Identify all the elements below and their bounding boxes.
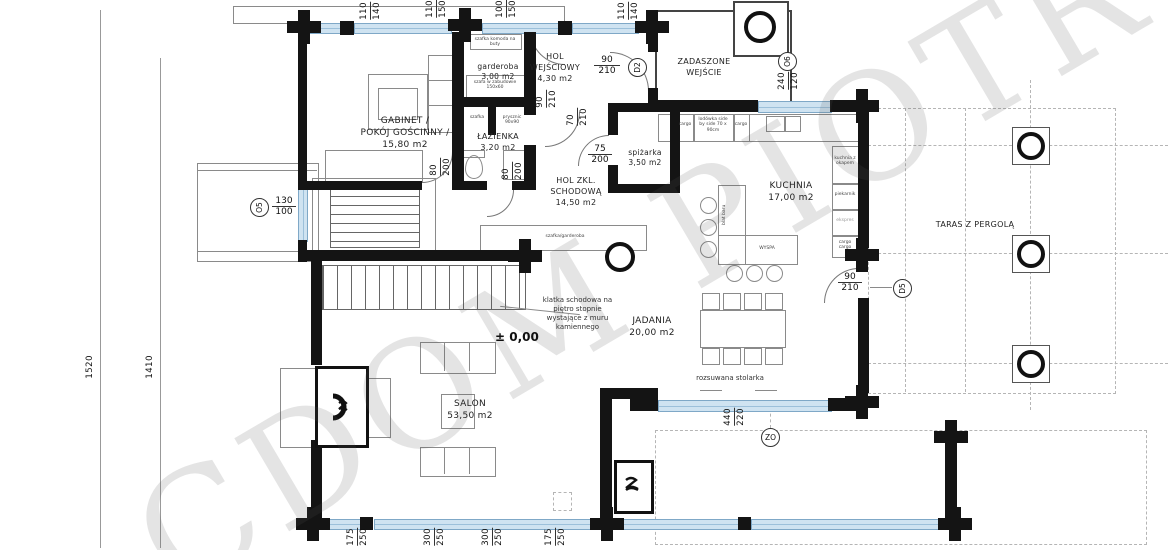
dim-window-4: 110140: [616, 2, 641, 20]
dining-chair: [723, 348, 741, 365]
rozsuwana-label: rozsuwana stolarka: [665, 374, 795, 383]
bath-cabinet-label: szafka: [466, 115, 488, 120]
log-corner-joint: [287, 10, 321, 44]
bar-stool: [766, 265, 783, 282]
marker-d5: D5: [893, 279, 912, 298]
wall-garderoba-lazienka: [452, 97, 536, 107]
sofa: [420, 342, 496, 374]
cargo-label: cargo: [732, 122, 750, 127]
stairs-note: klatka schodowa na piętro stopnie wystaj…: [515, 296, 640, 332]
pergola-column: [1012, 235, 1050, 273]
terrace-grid-line: [965, 108, 966, 392]
dim-spizarka-door: 75200: [588, 144, 612, 166]
door-arc-lazienka: [487, 190, 514, 217]
window-post: [738, 517, 751, 530]
sink-bowl: [766, 116, 785, 132]
wall-spizarka-left: [608, 112, 618, 135]
log-corner-joint: [296, 507, 330, 541]
sofa-seam: [469, 343, 470, 371]
cargo-label: cargo: [676, 122, 694, 127]
marker-zo: ZO: [761, 428, 780, 447]
wall-spizarka-top: [608, 103, 650, 112]
window-top-4: [572, 23, 639, 34]
island-bar-label: blat baru: [722, 195, 740, 235]
bar-stool: [700, 219, 717, 236]
dashed-square: [553, 492, 572, 511]
bar-stool: [700, 241, 717, 258]
bar-stool: [700, 197, 717, 214]
log-corner-joint: [845, 89, 879, 123]
dining-table: [700, 310, 786, 348]
slide-arrow: [700, 390, 722, 391]
d5-leader: [870, 287, 892, 288]
dim-door-gabinet: 80200: [428, 158, 453, 176]
dim-o5-window: 130100: [272, 196, 296, 218]
dim-window-2: 110150: [424, 0, 449, 18]
bar-stool: [726, 265, 743, 282]
sofa-seam: [444, 343, 445, 371]
bar-stool: [746, 265, 763, 282]
log-corner-joint: [845, 385, 879, 419]
wall-entry-south: [648, 100, 758, 112]
shoe-cabinet-label: szafka komoda na buty: [470, 37, 520, 48]
window-bottom-4: [751, 519, 947, 530]
sofa-seam: [469, 448, 470, 474]
pergola-column-ring: [1017, 350, 1045, 378]
kitchen-cargo-cabinet: [734, 114, 750, 142]
room-label-zadaszone: ZADASZONE WEJŚCIE: [660, 57, 748, 79]
sofa-seam: [444, 448, 445, 474]
wall-gabinet-bottom: [298, 181, 422, 190]
wall-lazienka-stub: [488, 107, 496, 135]
dining-chair: [765, 293, 783, 310]
dim-d5-door: 90210: [838, 272, 862, 294]
window-top-3: [482, 23, 562, 34]
marker-d2: D2: [628, 58, 647, 77]
dim-bottom-3: 300250: [480, 528, 505, 546]
dim-door-hol: 90210: [534, 90, 559, 108]
fireplace-chimney-outline: [280, 368, 316, 448]
dim-line-total: [100, 10, 101, 548]
pergola-column: [1012, 345, 1050, 383]
dim-o6-window: 240120: [776, 72, 801, 90]
dining-chair: [744, 293, 762, 310]
wall-gabinet-left: [298, 26, 307, 186]
dim-door-70: 70210: [565, 108, 590, 126]
dim-window-1: 110140: [358, 2, 383, 20]
oven-label: piekarnik: [833, 192, 857, 197]
wall-garderoba-left: [452, 32, 464, 182]
wall-lazienka-bottom: [452, 181, 487, 190]
room-label-hol-wejsciowy: HOL WEJŚCIOWY 4,30 m2: [515, 52, 595, 84]
dining-chair: [723, 293, 741, 310]
window-top-2: [354, 23, 452, 34]
room-label-spizarka: spiżarka 3,50 m2: [612, 148, 678, 168]
window-post: [340, 21, 354, 35]
room-label-gabinet: GABINET / POKÓJ GOŚCINNY / 15,80 m2: [335, 115, 475, 151]
marker-o5: O5: [250, 198, 269, 217]
island-label: WYSPA: [752, 246, 782, 251]
wall-lazienka-bottom: [512, 181, 536, 190]
log-corner-joint: [934, 420, 968, 454]
log-corner-joint: [508, 239, 542, 273]
espresso-label: ekspres: [833, 218, 857, 223]
fridge-label: lodówka side by side 70 x 90cm: [695, 117, 731, 133]
dining-chair: [765, 348, 783, 365]
dim-bottom-2: 300250: [422, 528, 447, 546]
level-mark: ± 0,00: [495, 330, 539, 344]
stairs-main-flight: [322, 265, 526, 310]
terrace-grid-line: [905, 108, 906, 392]
hob-label: kuchnia z okapem: [833, 156, 857, 167]
wall-stairs-top: [298, 250, 526, 261]
pergola-column-ring: [1017, 132, 1045, 160]
dim-stolarka: 440220: [722, 408, 747, 426]
outdoor-grill: [614, 460, 654, 514]
dining-chair: [744, 348, 762, 365]
window-o5: [298, 186, 308, 242]
window-post: [558, 21, 572, 35]
built-in-wardrobe-label: szafa w zabudowie 150x60: [466, 80, 524, 91]
chimney-circle: [744, 11, 776, 43]
dim-window-3: 100150: [494, 0, 519, 18]
pergola-column: [1012, 127, 1050, 165]
window-kitchen-o6: [758, 101, 832, 113]
window-bottom-3: [611, 519, 740, 530]
kitchen-cargo-cabinet: [678, 114, 694, 142]
dim-d2-door: 90210: [594, 55, 620, 77]
pergola-column-ring: [1017, 240, 1045, 268]
round-column: [605, 242, 635, 272]
cargo-tall-label: cargo cargo: [833, 240, 857, 251]
room-label-lazienka: ŁAZIENKA 3,20 m2: [458, 132, 538, 154]
fireplace: [315, 366, 369, 448]
toilet: [465, 155, 483, 179]
log-corner-joint: [938, 507, 972, 541]
room-label-hol-schodowy: HOL ZKL. SCHODOWĄ 14,50 m2: [535, 176, 617, 208]
sink-bowl: [785, 116, 801, 132]
dim-total-height: 1520: [84, 355, 96, 379]
flame-icon: [329, 392, 355, 422]
dim-bottom-4: 175250: [543, 528, 568, 546]
floor-plan: CDOM PIOTR STOKŁOSA 1520 1410 110140 110…: [0, 0, 1170, 550]
dining-chair: [702, 293, 720, 310]
stairs-upper-flight: [330, 186, 420, 248]
wall-dining-right: [858, 298, 869, 393]
room-label-taras: TARAS Z PERGOLĄ: [915, 220, 1035, 231]
wall-salon-left: [311, 261, 322, 365]
marker-o6: O6: [778, 52, 797, 71]
slide-arrow: [755, 390, 777, 391]
dim-line-inner: [160, 58, 161, 548]
dim-door-lazienka: 80200: [500, 162, 525, 180]
flame-icon: [623, 474, 645, 500]
wall-stolarka-left-stub: [630, 398, 658, 411]
dim-bottom-1: 175250: [345, 528, 370, 546]
dining-chair: [702, 348, 720, 365]
room-label-kuchnia: KUCHNIA 17,00 m2: [748, 180, 834, 204]
wall-salon-right: [600, 388, 612, 522]
gabinet-sideboard: [325, 150, 423, 182]
closet-label: szafka/garderoba: [520, 234, 610, 239]
shower-label: prysznic 90x90: [498, 115, 526, 126]
room-label-salon: SALON 53,50 m2: [430, 398, 510, 422]
dim-inner-height: 1410: [144, 355, 156, 379]
sofa: [420, 447, 496, 477]
